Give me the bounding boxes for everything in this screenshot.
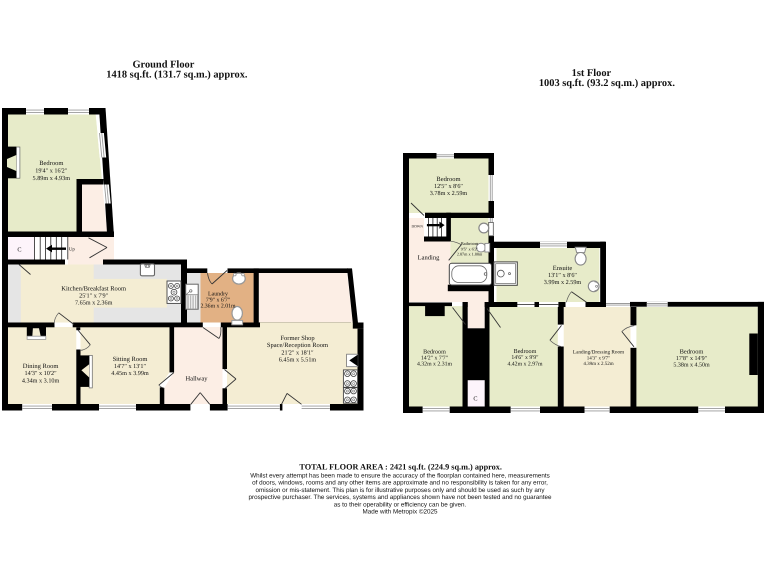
- svg-text:2.87m x 1.88m: 2.87m x 1.88m: [457, 252, 483, 257]
- svg-text:Bedroom: Bedroom: [39, 160, 63, 167]
- svg-text:4.39m x 2.52m: 4.39m x 2.52m: [583, 361, 613, 367]
- svg-text:C: C: [473, 395, 477, 402]
- svg-text:4.32m x 2.31m: 4.32m x 2.31m: [417, 362, 453, 368]
- svg-text:Kitchen/Breakfast Room: Kitchen/Breakfast Room: [61, 286, 126, 293]
- svg-text:1003 sq.ft. (93.2 sq.m.) appro: 1003 sq.ft. (93.2 sq.m.) approx.: [539, 78, 675, 89]
- svg-text:Dining Room: Dining Room: [23, 363, 59, 370]
- svg-text:6.45m x 5.51m: 6.45m x 5.51m: [279, 357, 317, 364]
- svg-text:Bedroom: Bedroom: [423, 349, 446, 356]
- svg-text:Bedroom: Bedroom: [436, 176, 460, 183]
- svg-text:7.65m x 2.36m: 7.65m x 2.36m: [75, 299, 113, 306]
- svg-text:Landing: Landing: [418, 254, 440, 261]
- svg-text:as to their operability or eff: as to their operability or efficiency ca…: [334, 501, 467, 508]
- svg-text:14'6″ x 9'9″: 14'6″ x 9'9″: [511, 355, 539, 361]
- svg-text:Bedroom: Bedroom: [680, 349, 704, 356]
- svg-text:4.42m x 2.97m: 4.42m x 2.97m: [507, 361, 543, 367]
- svg-text:Sitting Room: Sitting Room: [113, 356, 148, 363]
- svg-text:Space/Reception Room: Space/Reception Room: [267, 342, 328, 349]
- svg-text:Former Shop: Former Shop: [280, 335, 314, 342]
- svg-text:Bedroom: Bedroom: [514, 348, 537, 355]
- svg-text:1418 sq.ft. (131.7 sq.m.) appr: 1418 sq.ft. (131.7 sq.m.) approx.: [106, 70, 248, 81]
- svg-text:prospective purchaser. The ser: prospective purchaser. The services, sys…: [248, 494, 552, 501]
- svg-text:Up: Up: [69, 246, 75, 252]
- svg-text:C: C: [17, 246, 21, 253]
- svg-text:Hallway: Hallway: [185, 375, 208, 382]
- svg-text:Landing/Dressing Room: Landing/Dressing Room: [573, 350, 624, 356]
- svg-text:TOTAL FLOOR AREA : 2421 sq.ft.: TOTAL FLOOR AREA : 2421 sq.ft. (224.9 sq…: [299, 462, 502, 471]
- svg-text:Ensuite: Ensuite: [553, 265, 573, 272]
- svg-text:17'8″ x 14'9″: 17'8″ x 14'9″: [676, 356, 708, 362]
- svg-text:Whilst every attempt has been: Whilst every attempt has been made to en…: [250, 472, 550, 479]
- svg-text:5.89m x 4.93m: 5.89m x 4.93m: [33, 175, 71, 182]
- svg-text:4.45m x 3.99m: 4.45m x 3.99m: [111, 370, 149, 377]
- svg-text:12'5″ x 8'6″: 12'5″ x 8'6″: [434, 183, 463, 190]
- svg-text:3.99m x 2.59m: 3.99m x 2.59m: [544, 279, 582, 286]
- svg-text:21'2″ x 18'1″: 21'2″ x 18'1″: [281, 349, 314, 356]
- svg-text:2.36m x 2.01m: 2.36m x 2.01m: [200, 303, 236, 309]
- svg-text:Made with Metropix ©2025: Made with Metropix ©2025: [363, 509, 438, 516]
- svg-text:3.78m x 2.59m: 3.78m x 2.59m: [430, 190, 468, 197]
- svg-text:omission or mis-statement. Thi: omission or mis-statement. This plan is …: [256, 487, 546, 494]
- svg-text:14'3″ x 9'7″: 14'3″ x 9'7″: [587, 355, 610, 361]
- svg-text:19'4″ x 16'2″: 19'4″ x 16'2″: [35, 167, 68, 174]
- svg-text:DOWN: DOWN: [411, 225, 423, 229]
- svg-text:14'3″ x 10'2″: 14'3″ x 10'2″: [25, 370, 58, 377]
- svg-text:of doors, windows, rooms and a: of doors, windows, rooms and any other i…: [252, 480, 548, 487]
- svg-text:4.34m x 3.10m: 4.34m x 3.10m: [22, 377, 60, 384]
- svg-text:5.38m x 4.50m: 5.38m x 4.50m: [673, 363, 710, 369]
